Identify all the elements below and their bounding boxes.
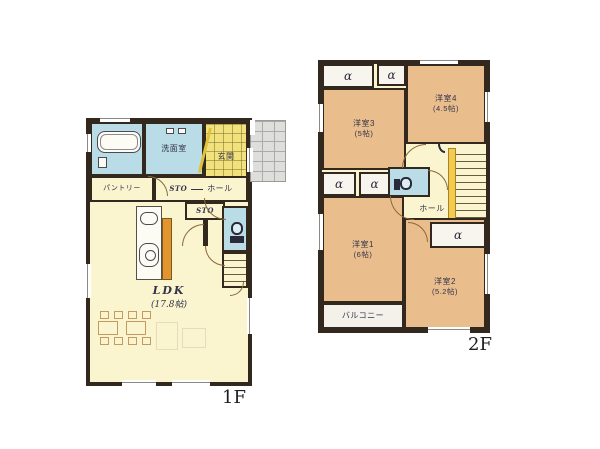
chair-icon (100, 311, 109, 319)
window (428, 327, 470, 333)
room2-size: (5.2帖) (432, 287, 458, 296)
room2-name: 洋室2 (434, 277, 456, 287)
kitchen-counter (136, 206, 162, 280)
ldk-name: LDK (130, 284, 208, 297)
bathtub-icon (97, 131, 141, 153)
hall-1f-label: ホール (207, 184, 233, 194)
furniture-sketch (156, 322, 178, 350)
window (317, 104, 323, 132)
washroom-label: 洗面室 (161, 144, 187, 154)
sto-label: STO (169, 185, 187, 194)
window (485, 254, 491, 294)
chair-icon (128, 311, 137, 319)
window (122, 380, 156, 386)
chair-icon (142, 337, 151, 345)
closet-label: α (344, 69, 352, 83)
ldk-label: LDK (17.8帖) (130, 284, 208, 310)
chair-icon (142, 311, 151, 319)
bedroom-1: 洋室1 (6帖) (322, 196, 404, 303)
kitchen-sink-icon (140, 212, 158, 225)
floor-label-1f: 1F (212, 387, 256, 408)
dining-table-icon (126, 321, 146, 335)
bath-faucet-icon (98, 157, 107, 168)
closet-label: α (454, 228, 462, 242)
washer-icon (178, 128, 186, 134)
toilet-bowl-icon (400, 177, 412, 190)
kitchen-counter-edge (162, 218, 172, 280)
room1-name: 洋室1 (352, 240, 374, 250)
pantry: パントリー (90, 176, 154, 202)
floor-plan-1f: 洗面室 玄関 パントリー STO ホール STO (86, 118, 252, 386)
balcony: バルコニー (322, 303, 404, 329)
stairs-2f (456, 148, 486, 228)
door-arc-stairs (230, 282, 244, 296)
window (85, 264, 91, 298)
genkan-label: 玄関 (206, 152, 246, 162)
pantry-label: パントリー (103, 185, 141, 194)
closet-label: α (370, 177, 378, 191)
chair-icon (128, 337, 137, 345)
furniture-sketch (182, 328, 206, 348)
closet: α (322, 172, 356, 196)
closet: α (377, 64, 406, 86)
stair-rail-strip (448, 148, 456, 228)
window (485, 92, 491, 122)
ldk-size: (17.8帖) (130, 297, 208, 310)
chair-icon (100, 337, 109, 345)
room3-size: (5帖) (355, 129, 374, 138)
door-arc-hall (205, 246, 225, 266)
porch-step-notch (250, 120, 255, 135)
window (247, 298, 253, 334)
window (172, 380, 210, 386)
toilet-2f (388, 167, 430, 197)
floor-label-2f: 2F (458, 334, 502, 355)
room3-name: 洋室3 (353, 119, 375, 129)
room4-name: 洋室4 (435, 94, 457, 104)
window (420, 58, 458, 64)
washroom: 洗面室 (144, 122, 204, 176)
floorplan-image: 洗面室 玄関 パントリー STO ホール STO (0, 0, 600, 449)
room4-size: (4.5帖) (433, 104, 459, 113)
toilet-bowl-icon (231, 222, 243, 235)
bathroom (90, 122, 144, 176)
closet-label: α (335, 177, 343, 191)
kitchen-stove-icon (139, 243, 159, 267)
washstand-icon (166, 128, 174, 134)
entrance-door-opening (247, 148, 253, 172)
closet: α (322, 64, 374, 88)
balcony-label: バルコニー (342, 311, 384, 321)
closet: α (359, 172, 390, 196)
window (85, 134, 91, 152)
bedroom-4: 洋室4 (4.5帖) (406, 64, 486, 144)
toilet-tank-icon (394, 179, 400, 190)
hall-1f: STO ホール (154, 176, 248, 202)
closet-label: α (387, 68, 395, 82)
window (100, 116, 130, 122)
hall-2f-label: ホール (419, 204, 445, 213)
chair-icon (114, 337, 123, 345)
stair-direction-mark (438, 144, 445, 153)
door-arc-toilet2f (428, 170, 448, 190)
toilet-tank-icon (230, 236, 244, 243)
closet: α (430, 222, 486, 248)
window (317, 214, 323, 250)
floor-plan-2f: 洋室4 (4.5帖) α α 洋室3 (5帖) α α ホール (318, 60, 490, 333)
dining-table-icon (98, 321, 118, 335)
room1-size: (6帖) (354, 250, 373, 259)
door-arc-ldk (182, 224, 204, 246)
leader-line (191, 189, 203, 190)
chair-icon (114, 311, 123, 319)
bedroom-3: 洋室3 (5帖) (322, 88, 406, 170)
entrance-porch (250, 120, 286, 182)
